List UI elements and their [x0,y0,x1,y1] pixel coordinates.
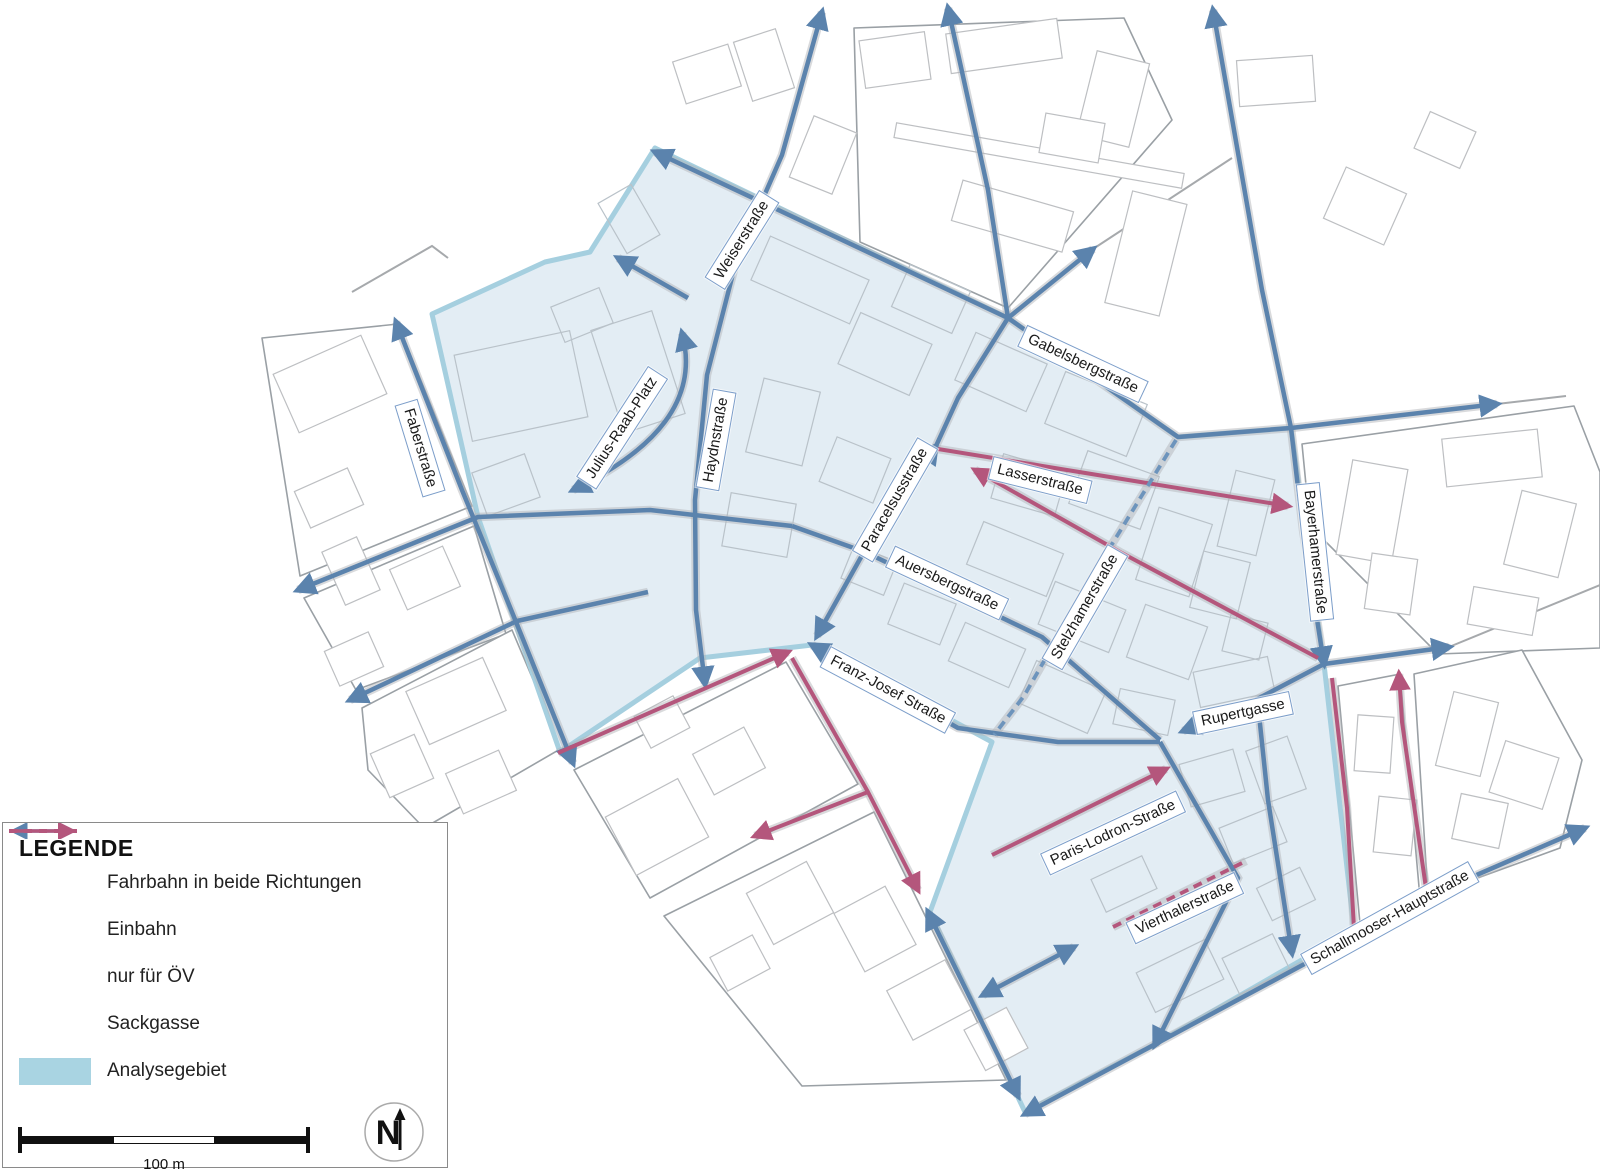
legend-item-oev: nur für ÖV [15,962,447,992]
legend-panel: LEGENDE Fahrbahn in beide Richtungen Ein… [2,822,448,1168]
scale-bar: 100 m [18,1126,310,1166]
scale-segment [114,1136,213,1144]
legend-item-label: Fahrbahn in beide Richtungen [107,872,362,894]
scale-label: 100 m [18,1156,310,1171]
scale-segment [22,1136,114,1144]
legend-item-one-way: Einbahn [15,915,447,945]
legend-title: LEGENDE [19,835,447,862]
legend-item-label: nur für ÖV [107,966,195,988]
map-page: WeiserstraßeGabelsbergstraßeFaberstraßeJ… [0,0,1600,1171]
legend-item-area: Analysegebiet [15,1056,447,1086]
scale-segment [214,1136,306,1144]
legend-item-label: Analysegebiet [107,1060,226,1082]
legend-item-dead-end: Sackgasse [15,1009,447,1039]
legend-item-label: Einbahn [107,919,177,941]
north-arrow: N [362,1100,426,1164]
legend-item-two-way: Fahrbahn in beide Richtungen [15,868,447,898]
scale-tick [306,1127,310,1153]
area-swatch-icon [15,1058,95,1085]
legend-item-label: Sackgasse [107,1013,200,1035]
